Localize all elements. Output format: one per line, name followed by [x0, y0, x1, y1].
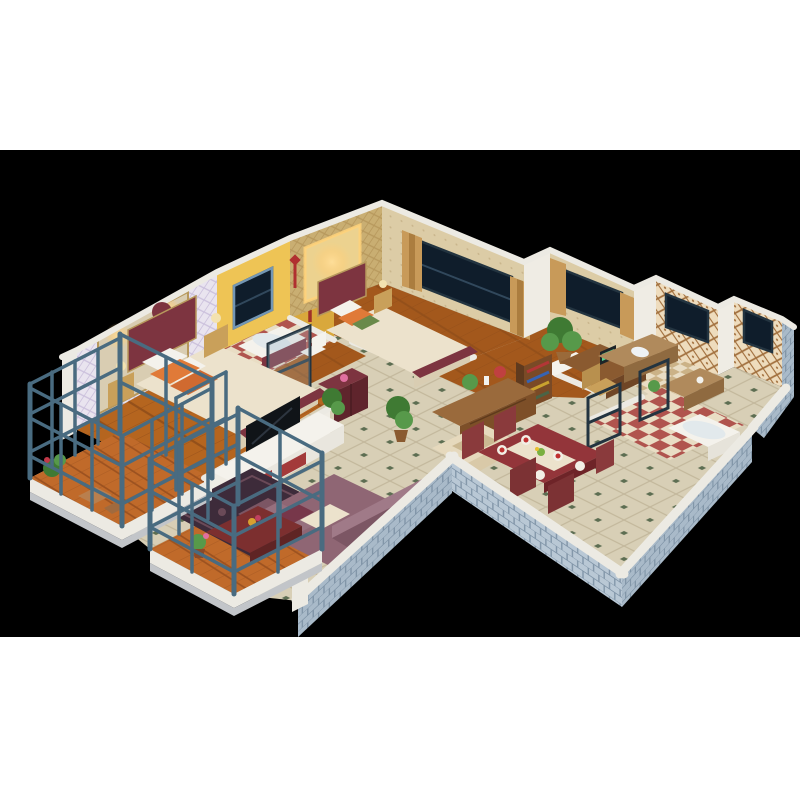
- plant-foliage: [562, 331, 582, 351]
- food: [556, 454, 561, 459]
- wall-jog-3: [718, 299, 734, 375]
- dishes: [697, 377, 704, 384]
- floorplan-3d-render: [0, 0, 800, 800]
- flowers: [255, 515, 261, 521]
- curtain-left-fold: [409, 233, 415, 290]
- balcony-flowers-2: [203, 533, 209, 539]
- sideboard-flowers: [494, 366, 506, 378]
- food: [524, 438, 529, 443]
- table-lamp: [379, 280, 387, 288]
- food: [500, 448, 505, 453]
- curtain-right: [620, 292, 634, 340]
- rug-motif: [218, 508, 226, 516]
- curtain-right-fold: [517, 279, 523, 337]
- plate: [535, 470, 545, 480]
- bath-plant: [648, 380, 660, 392]
- render-viewport: [0, 0, 800, 800]
- table-lamp: [211, 313, 221, 323]
- plant-foliage: [331, 401, 345, 415]
- plate: [575, 461, 585, 471]
- white-vase: [484, 376, 489, 385]
- sideboard-plant: [462, 374, 478, 390]
- flower-pot-pink: [340, 374, 348, 382]
- curtain-left: [550, 258, 566, 316]
- plant-foliage: [395, 411, 413, 429]
- plant-foliage: [541, 333, 559, 351]
- fruit: [535, 447, 539, 451]
- headboard-crown: [152, 302, 172, 322]
